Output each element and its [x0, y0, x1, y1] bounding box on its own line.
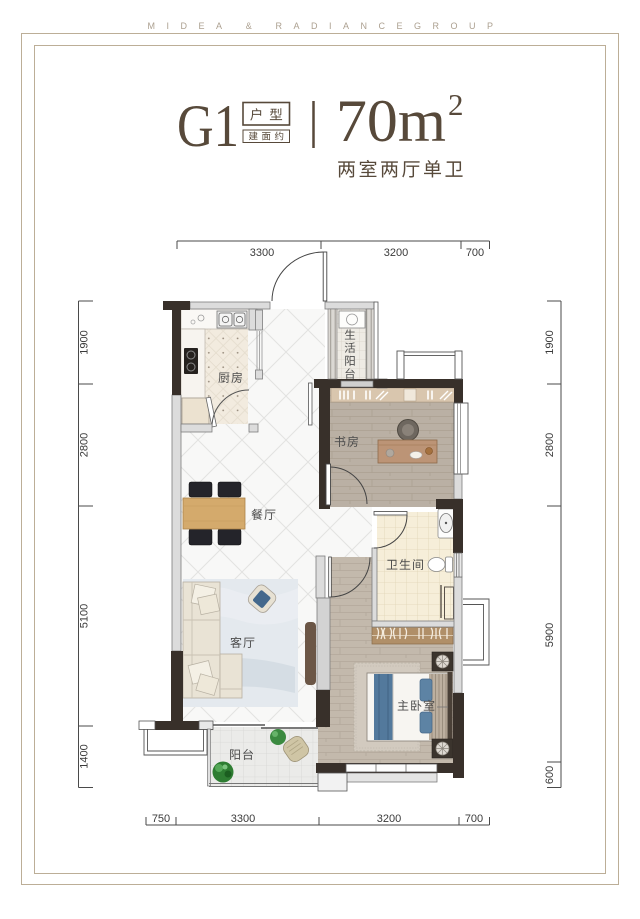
svg-text:G1: G1 [177, 93, 239, 159]
svg-text:3300: 3300 [250, 247, 274, 259]
svg-text:1400: 1400 [79, 744, 91, 768]
svg-text:750: 750 [152, 813, 170, 825]
svg-text:5100: 5100 [79, 604, 91, 628]
svg-text:3300: 3300 [231, 813, 255, 825]
svg-text:1900: 1900 [79, 330, 91, 354]
svg-text:3200: 3200 [377, 813, 401, 825]
svg-text:700: 700 [466, 247, 484, 259]
svg-text:600: 600 [544, 766, 556, 784]
svg-text:2800: 2800 [79, 433, 91, 457]
svg-text:3200: 3200 [384, 247, 408, 259]
svg-text:70m: 70m [336, 88, 446, 154]
svg-text:2800: 2800 [544, 433, 556, 457]
svg-text:2: 2 [448, 87, 464, 122]
svg-text:MIDEA & RADIANCEGROUP: MIDEA & RADIANCEGROUP [147, 21, 504, 31]
svg-text:700: 700 [465, 813, 483, 825]
svg-text:1900: 1900 [544, 330, 556, 354]
svg-text:5900: 5900 [544, 623, 556, 647]
